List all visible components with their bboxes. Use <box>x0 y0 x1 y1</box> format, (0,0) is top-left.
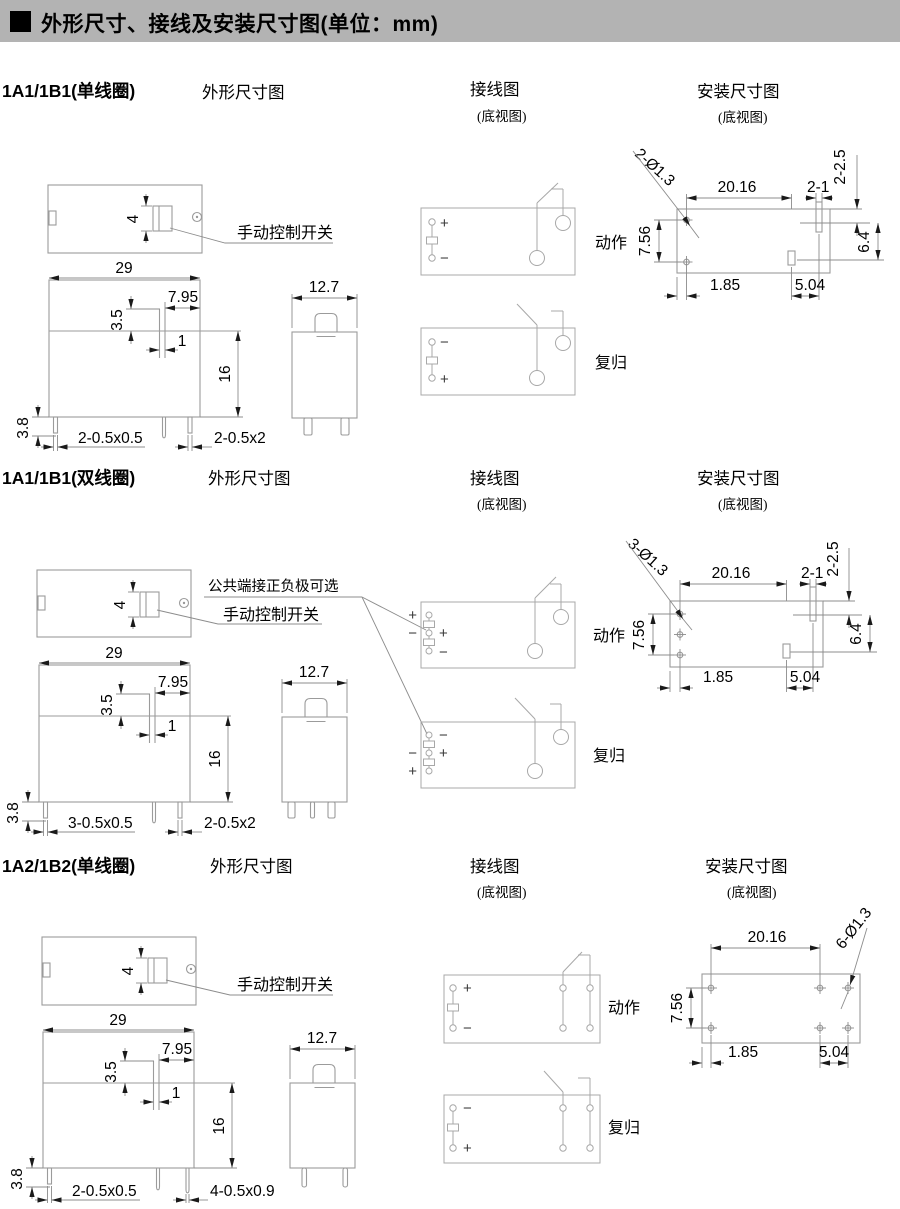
pins-left-label: 3-0.5x0.5 <box>68 815 133 832</box>
state-reset-label: 复归 <box>593 747 625 765</box>
dim-slot-length: 2-2.5 <box>825 541 842 576</box>
dim-pitch-y: 7.56 <box>637 226 654 256</box>
dim-height: 16 <box>207 750 224 767</box>
s1-outline-side-view: 12.7 <box>292 279 357 435</box>
terminal-plus: + <box>440 215 449 232</box>
dim-pin-length: 3.8 <box>5 802 22 824</box>
dim-notch: 3.5 <box>103 1061 120 1083</box>
col-wiring-title: 接线图 <box>470 80 520 99</box>
terminal-minus: − <box>440 334 449 351</box>
s3-outline-side-view: 12.7 <box>290 1030 355 1187</box>
terminal-plus: + <box>408 607 417 624</box>
col-outline-title: 外形尺寸图 <box>210 857 293 876</box>
dim-right-offset: 7.95 <box>162 1041 192 1058</box>
dim-pin-length: 3.8 <box>15 417 32 439</box>
dim-offset: 6.4 <box>848 623 865 645</box>
state-reset-label: 复归 <box>595 354 627 372</box>
dim-notch: 3.5 <box>99 694 116 716</box>
terminal-plus: + <box>408 763 417 780</box>
col-mount-subtitle: (底视图) <box>727 885 777 900</box>
col-mount-subtitle: (底视图) <box>718 497 768 512</box>
dim-edge-right: 5.04 <box>790 669 821 686</box>
col-mount-title: 安装尺寸图 <box>697 469 780 488</box>
dim-pitch-y: 7.56 <box>669 993 686 1023</box>
pins-left-label: 2-0.5x0.5 <box>72 1183 137 1200</box>
model-label: 1A1/1B1(双线圈) <box>2 468 135 488</box>
polarity-note-label: 公共端接正负极可选 <box>208 578 339 595</box>
section-2: 1A1/1B1(双线圈) 外形尺寸图 接线图 (底视图) 安装尺寸图 (底视图)… <box>2 468 877 836</box>
section-2-headers: 1A1/1B1(双线圈) 外形尺寸图 接线图 (底视图) 安装尺寸图 (底视图) <box>2 468 780 512</box>
manual-switch-label: 手动控制开关 <box>237 976 333 994</box>
dim-slot: 1 <box>172 1085 181 1102</box>
terminal-minus: − <box>408 625 417 642</box>
s2-mount-diagram: 3-Ø1.3 20.16 2-1 2-2.5 6.4 7.56 1.85 <box>624 535 877 692</box>
dim-edge-left: 1.85 <box>710 277 740 294</box>
dim-width: 29 <box>115 260 132 277</box>
terminal-plus: + <box>463 1140 472 1157</box>
terminal-minus: − <box>408 745 417 762</box>
terminal-plus: + <box>463 980 472 997</box>
col-mount-title: 安装尺寸图 <box>697 82 780 101</box>
section-1-headers: 1A1/1B1(单线圈) 外形尺寸图 接线图 (底视图) 安装尺寸图 (底视图) <box>2 80 780 125</box>
dim-height: 16 <box>217 365 234 382</box>
pins-right-label: 2-0.5x2 <box>214 430 266 447</box>
s1-mount-diagram: 2-Ø1.3 20.16 2-1 2-2.5 6.4 7.56 1.85 <box>631 145 884 300</box>
dim-pitch-x: 20.16 <box>718 179 757 196</box>
dim-width: 29 <box>105 645 122 662</box>
s1-wiring-diagram: + − 动作 − + 复归 <box>421 183 627 395</box>
col-outline-title: 外形尺寸图 <box>202 83 285 102</box>
section-3: 1A2/1B2(单线圈) 外形尺寸图 接线图 (底视图) 安装尺寸图 (底视图)… <box>2 856 875 1203</box>
page-title: 外形尺寸、接线及安装尺寸图(单位：mm) <box>41 8 438 38</box>
pins-right-label: 2-0.5x2 <box>204 815 256 832</box>
dim-slot-width: 2-1 <box>801 565 823 582</box>
mount-holes-label: 3-Ø1.3 <box>624 535 671 579</box>
s2-outline-front-view: 29 3.5 7.95 1 16 3.8 3-0.5x0.5 2-0.5x2 <box>5 645 256 836</box>
pins-right-label: 4-0.5x0.9 <box>210 1183 275 1200</box>
dim-edge-left: 1.85 <box>703 669 733 686</box>
terminal-plus: + <box>439 625 448 642</box>
dim-slot-width: 2-1 <box>807 179 829 196</box>
dim-right-offset: 7.95 <box>168 289 198 306</box>
col-mount-subtitle: (底视图) <box>718 110 768 125</box>
dim-switch-height: 4 <box>125 214 142 223</box>
manual-switch-label: 手动控制开关 <box>237 224 333 242</box>
col-wiring-title: 接线图 <box>470 857 520 876</box>
header-bar: 外形尺寸、接线及安装尺寸图(单位：mm) <box>0 0 900 42</box>
state-action-label: 动作 <box>593 627 625 645</box>
s1-outline-front-view: 29 3.5 7.95 1 16 3.8 2-0.5x0.5 2-0.5x2 <box>15 260 266 451</box>
black-square-bullet-icon <box>10 11 31 32</box>
terminal-plus: + <box>440 371 449 388</box>
s3-wiring-diagram: + − 动作 − + 复归 <box>444 952 640 1163</box>
dim-slot: 1 <box>178 333 187 350</box>
col-wiring-title: 接线图 <box>470 469 520 488</box>
manual-switch-label: 手动控制开关 <box>223 606 319 624</box>
terminal-minus: − <box>463 1020 472 1037</box>
terminal-minus: − <box>440 250 449 267</box>
dim-right-offset: 7.95 <box>158 674 188 691</box>
s2-wiring-diagram: + − + − 动作 − + − + 复归 <box>408 577 625 788</box>
dim-pin-length: 3.8 <box>9 1168 26 1190</box>
s2-outline-top-view: 4 公共端接正负极可选 手动控制开关 <box>37 570 427 734</box>
mount-holes-label: 2-Ø1.3 <box>631 145 678 189</box>
dim-height: 16 <box>211 1117 228 1134</box>
col-outline-title: 外形尺寸图 <box>208 469 291 488</box>
pins-left-label: 2-0.5x0.5 <box>78 430 143 447</box>
terminal-plus: + <box>439 745 448 762</box>
section-1: 1A1/1B1(单线圈) 外形尺寸图 接线图 (底视图) 安装尺寸图 (底视图)… <box>2 80 884 451</box>
dim-width: 29 <box>109 1012 126 1029</box>
dim-edge-right: 5.04 <box>819 1044 850 1061</box>
s1-outline-top-view: 4 手动控制开关 <box>48 185 333 253</box>
dim-slot-length: 2-2.5 <box>832 149 849 184</box>
model-label: 1A2/1B2(单线圈) <box>2 856 135 876</box>
dim-side-width: 12.7 <box>309 279 339 296</box>
datasheet-page: { "header": { "title": "外形尺寸、接线及安装尺寸图(单位… <box>0 0 900 1209</box>
section-3-headers: 1A2/1B2(单线圈) 外形尺寸图 接线图 (底视图) 安装尺寸图 (底视图) <box>2 856 788 900</box>
terminal-minus: − <box>439 727 448 744</box>
terminal-minus: − <box>463 1100 472 1117</box>
col-wiring-subtitle: (底视图) <box>477 885 527 900</box>
state-reset-label: 复归 <box>608 1119 640 1137</box>
dim-pitch-x: 20.16 <box>748 929 787 946</box>
dim-offset: 6.4 <box>856 231 873 253</box>
dim-side-width: 12.7 <box>307 1030 337 1047</box>
state-action-label: 动作 <box>608 999 640 1017</box>
dim-switch-height: 4 <box>120 966 137 975</box>
diagram-canvas: 1A1/1B1(单线圈) 外形尺寸图 接线图 (底视图) 安装尺寸图 (底视图)… <box>0 0 900 1209</box>
s3-outline-top-view: 4 手动控制开关 <box>42 937 333 1005</box>
dim-slot: 1 <box>168 718 177 735</box>
dim-edge-right: 5.04 <box>795 277 826 294</box>
dim-edge-left: 1.85 <box>728 1044 758 1061</box>
terminal-minus: − <box>439 644 448 661</box>
mount-holes-label: 6-Ø1.3 <box>833 905 876 953</box>
s3-outline-front-view: 29 3.5 7.95 1 16 3.8 2-0.5x0.5 4-0.5x0.9 <box>9 1012 275 1203</box>
col-wiring-subtitle: (底视图) <box>477 109 527 124</box>
model-label: 1A1/1B1(单线圈) <box>2 81 135 101</box>
col-wiring-subtitle: (底视图) <box>477 497 527 512</box>
dim-notch: 3.5 <box>109 309 126 331</box>
s2-outline-side-view: 12.7 <box>282 664 347 818</box>
dim-pitch-y: 7.56 <box>631 620 648 650</box>
state-action-label: 动作 <box>595 234 627 252</box>
dim-pitch-x: 20.16 <box>712 565 751 582</box>
s3-mount-diagram: 6-Ø1.3 20.16 7.56 1.85 5.04 <box>669 905 875 1068</box>
dim-side-width: 12.7 <box>299 664 329 681</box>
col-mount-title: 安装尺寸图 <box>705 857 788 876</box>
dim-switch-height: 4 <box>112 600 129 609</box>
